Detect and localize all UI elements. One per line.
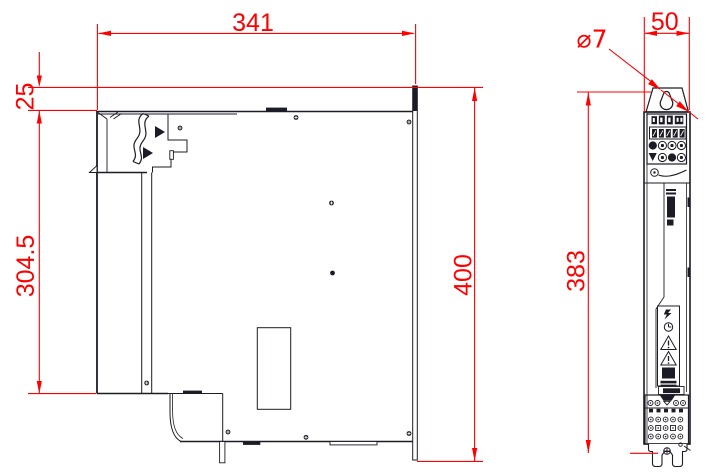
keypad-row-2 [649,153,686,162]
release-latch [133,114,187,173]
latch-arrow-icon [155,126,165,138]
terminal-row [648,417,682,422]
mounting-plate [413,86,418,460]
seven-segment-display [650,127,687,139]
dim-341: 341 [98,9,415,37]
dim-383-label: 383 [563,250,591,292]
warning-label [658,306,680,386]
down-arrow-icon [649,153,657,161]
dim-400-label: 400 [450,254,478,296]
dim-50: 50 [645,8,689,36]
dim-304-5-label: 304.5 [12,235,40,298]
screw-icon [329,201,334,206]
rating-label [666,189,676,226]
technical-drawing: 341 25 304.5 400 50 [0,0,706,474]
side-tab-icon [688,198,691,208]
dim-hole-diameter: ⌀7 [577,25,698,120]
brand-logo [652,116,684,125]
dim-25-label: 25 [12,83,40,111]
screw-icon [407,431,412,436]
chassis-outline [90,108,413,463]
dimension-drawing-canvas: 341 25 304.5 400 50 [0,0,706,474]
keypad-button [649,141,657,149]
screw-icon [304,435,309,440]
side-label-area [257,328,290,410]
dim-25: 25 [12,52,42,110]
keypad-button [668,153,676,161]
screw-icon [178,126,183,131]
latch-arrow-icon [143,147,153,159]
dim-50-label: 50 [651,8,679,36]
screw-icon [226,430,231,435]
dim-400: 400 [450,88,478,461]
keypad-row-1 [649,141,686,149]
terminal-block [645,395,689,444]
screw-icon [144,381,149,386]
dim-341-label: 341 [232,9,274,37]
mounting-foot [649,443,691,467]
dim-304-5: 304.5 [12,111,42,394]
dim-hole-label: ⌀7 [577,25,608,54]
terminal-row [648,434,682,439]
side-view [90,86,418,463]
terminal-row [648,426,682,431]
dim-383: 383 [563,92,591,453]
screw-icon [407,120,412,125]
front-view [644,88,691,467]
screw-icon [294,115,299,120]
label-block [662,368,675,379]
side-tab-icon [688,268,691,278]
rivet-icon [330,271,335,276]
operator-panel [644,114,690,183]
